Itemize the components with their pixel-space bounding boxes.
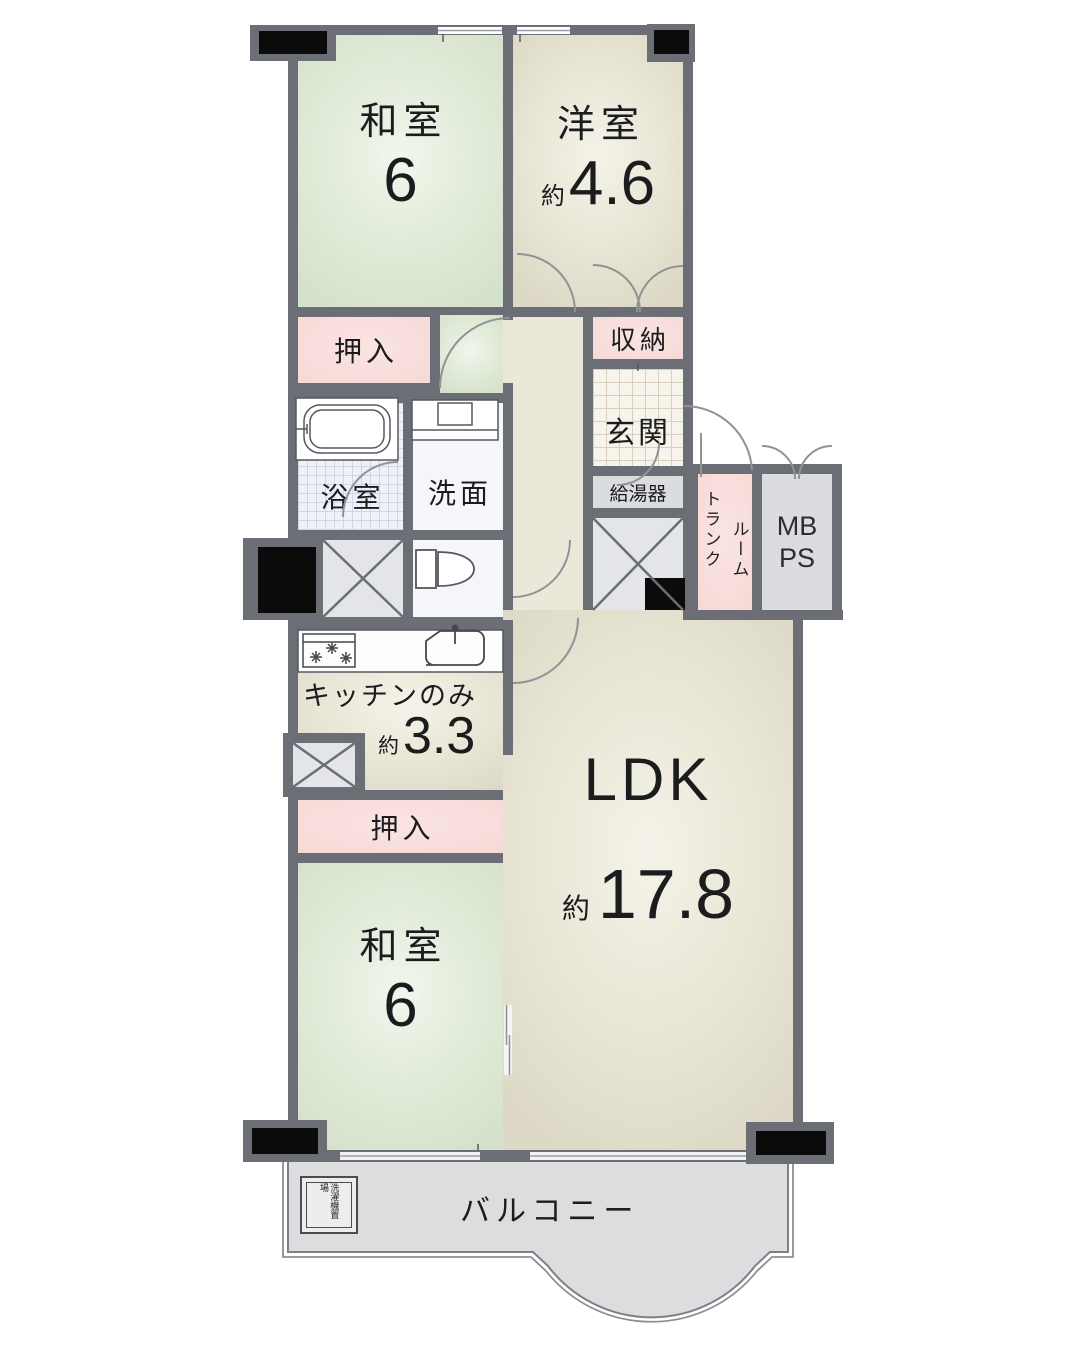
shaft-left	[313, 530, 413, 627]
pillar-bottom-right	[746, 1122, 834, 1164]
room-name: 和室	[353, 90, 447, 145]
room-area: 6	[383, 145, 417, 216]
trunk-label-left: トランク	[699, 490, 724, 610]
pillar-bottom-left	[243, 1120, 327, 1162]
pillar-top-left	[250, 25, 336, 61]
laundry-box: 洗濯機置場	[300, 1176, 358, 1234]
closet-label: 押入	[330, 330, 398, 370]
room-washitsu-bottom: 和室 6	[288, 853, 513, 1160]
room-area-line: 約 4.6	[541, 148, 655, 219]
area-prefix: 約	[378, 730, 399, 760]
room-name: 洋室	[551, 93, 645, 148]
closet-shuunou: 収納	[583, 307, 693, 369]
bathroom-label: 浴室	[316, 476, 384, 516]
room-name: 和室	[353, 915, 447, 970]
washitsu-vestibule	[438, 315, 503, 393]
shaft-kitchen	[283, 733, 365, 797]
kitchen-area-line: 約 3.3	[378, 706, 475, 766]
pillar-mid-left	[243, 538, 323, 620]
room-ldk: LDK 約 17.8	[503, 610, 803, 1160]
trunk-label-right: ルーム	[727, 520, 752, 610]
room-washitsu-top: 和室 6	[288, 25, 513, 317]
closet-label: 押入	[366, 807, 434, 847]
room-area: 4.6	[569, 148, 655, 219]
hallway	[503, 305, 593, 635]
genkan-label: 玄関	[583, 408, 693, 452]
mbps-line1: MB	[777, 510, 818, 542]
room-yoshitsu: 洋室 約 4.6	[503, 25, 693, 317]
laundry-box-inner: 洗濯機置場	[306, 1182, 352, 1228]
ldk-area: 17.8	[598, 854, 734, 934]
pillar-top-right	[647, 24, 695, 62]
room-area: 6	[383, 970, 417, 1041]
balcony-floor	[288, 1160, 788, 1317]
box-mbps: MB PS	[752, 464, 842, 620]
ldk-area-line: 約 17.8	[562, 854, 734, 934]
closet-oshiire-top: 押入	[288, 307, 440, 393]
room-toilet	[403, 530, 513, 627]
shuunou-label: 収納	[606, 320, 670, 357]
laundry-label: 洗濯機置場	[319, 1183, 340, 1227]
pillar-shaft-black	[645, 578, 685, 612]
area-prefix: 約	[541, 176, 565, 211]
room-trunk: ルーム トランク	[688, 464, 762, 620]
kitchen-area: 3.3	[403, 706, 475, 766]
room-bathroom: 浴室	[288, 393, 413, 540]
kyutoki-label: 給湯器	[609, 479, 666, 506]
area-prefix: 約	[562, 887, 590, 927]
mbps-line2: PS	[779, 542, 815, 574]
ldk-name: LDK	[584, 745, 713, 814]
senmen-label: 洗面	[424, 472, 492, 512]
floor-plan: 和室 6 洋室 約 4.6 押入 浴室 洗面 収納 玄関 給湯器 ルーム トラン…	[0, 0, 1080, 1350]
balcony-label: バルコニー	[460, 1186, 639, 1230]
room-senmen: 洗面	[403, 393, 513, 540]
